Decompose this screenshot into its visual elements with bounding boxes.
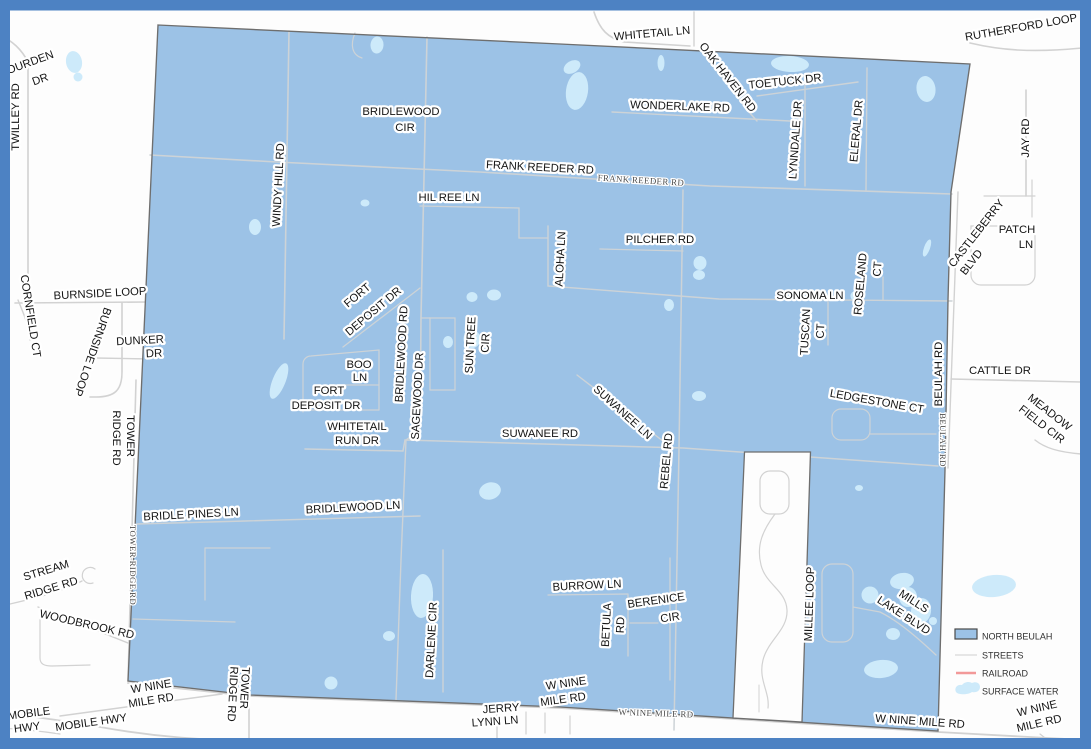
svg-text:STREETS: STREETS — [982, 650, 1024, 660]
svg-text:LN: LN — [353, 372, 367, 384]
svg-text:BRIDLEWOOD: BRIDLEWOOD — [362, 106, 439, 118]
svg-text:CIR: CIR — [479, 333, 492, 353]
svg-text:DUNKER: DUNKER — [116, 334, 164, 348]
svg-text:CT: CT — [815, 323, 828, 339]
svg-text:BOO: BOO — [346, 359, 371, 371]
svg-text:BEULAH RD: BEULAH RD — [933, 342, 945, 407]
svg-text:SUWANEE RD: SUWANEE RD — [502, 428, 578, 440]
svg-text:DEPOSIT DR: DEPOSIT DR — [292, 400, 361, 412]
svg-text:SONOMA LN: SONOMA LN — [776, 290, 843, 302]
svg-text:TUSCAN: TUSCAN — [799, 309, 813, 356]
svg-text:DR: DR — [146, 348, 163, 361]
svg-text:HIL REE LN: HIL REE LN — [418, 192, 479, 204]
svg-text:BEULAH RD: BEULAH RD — [938, 413, 948, 467]
svg-text:CIR: CIR — [395, 122, 414, 134]
svg-text:TWILLEY RD: TWILLEY RD — [10, 83, 22, 151]
svg-text:RD: RD — [615, 617, 628, 634]
svg-text:FORT: FORT — [314, 385, 345, 397]
svg-text:RIDGE RD: RIDGE RD — [110, 410, 122, 465]
svg-text:LN: LN — [1019, 239, 1033, 251]
svg-text:TOWER RIDGE RD: TOWER RIDGE RD — [128, 525, 138, 605]
svg-text:CATTLE DR: CATTLE DR — [969, 365, 1031, 377]
svg-text:NORTH BEULAH: NORTH BEULAH — [982, 631, 1052, 641]
svg-text:TOWER: TOWER — [124, 415, 136, 457]
svg-text:JAY RD: JAY RD — [1020, 118, 1032, 157]
svg-text:SURFACE WATER: SURFACE WATER — [982, 686, 1059, 696]
svg-text:WHITETAIL: WHITETAIL — [327, 421, 386, 433]
svg-text:RAILROAD: RAILROAD — [982, 668, 1029, 678]
svg-text:PATCH: PATCH — [999, 224, 1036, 236]
svg-text:CT: CT — [871, 261, 884, 277]
svg-text:RUN DR: RUN DR — [335, 435, 379, 447]
svg-text:PILCHER RD: PILCHER RD — [626, 234, 694, 246]
svg-text:BETULA: BETULA — [600, 602, 614, 647]
